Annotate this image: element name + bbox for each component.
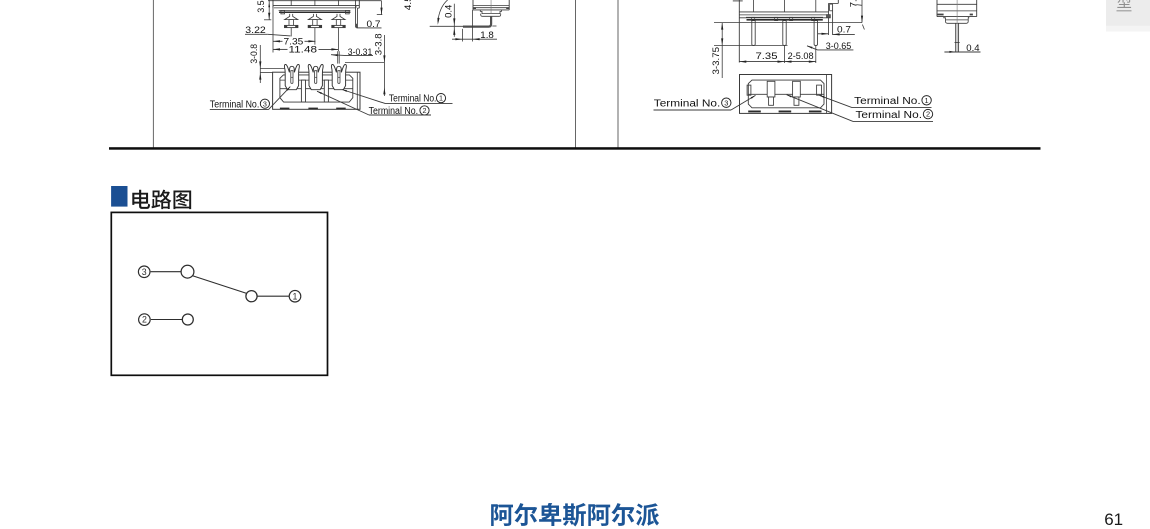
svg-text:3-3.75: 3-3.75: [711, 47, 721, 75]
svg-text:0.7: 0.7: [837, 24, 851, 34]
svg-text:3: 3: [263, 99, 267, 108]
svg-text:1: 1: [439, 94, 443, 103]
svg-text:3.22: 3.22: [245, 25, 265, 35]
svg-text:11.48: 11.48: [289, 45, 318, 55]
svg-text:3-3.8: 3-3.8: [374, 33, 384, 55]
svg-text:Terminal No.: Terminal No.: [856, 110, 923, 121]
svg-text:3: 3: [724, 98, 728, 107]
svg-text:0.4: 0.4: [966, 43, 979, 53]
svg-text:Terminal No.: Terminal No.: [210, 99, 259, 110]
svg-text:Terminal No.: Terminal No.: [654, 98, 721, 109]
svg-text:7.5: 7.5: [849, 0, 859, 7]
svg-text:7.35: 7.35: [756, 51, 778, 61]
svg-text:1: 1: [925, 96, 929, 105]
svg-text:Terminal No.: Terminal No.: [389, 94, 437, 105]
svg-text:Terminal No.: Terminal No.: [854, 96, 921, 107]
svg-text:2: 2: [142, 315, 147, 325]
svg-text:3.5: 3.5: [256, 0, 266, 13]
svg-text:0.4: 0.4: [443, 5, 453, 18]
svg-text:3-0.8: 3-0.8: [249, 44, 259, 64]
svg-text:2: 2: [423, 106, 427, 115]
svg-text:1.8: 1.8: [480, 30, 494, 40]
svg-text:61: 61: [1104, 510, 1123, 529]
svg-text:2-5.08: 2-5.08: [788, 51, 814, 61]
svg-text:3: 3: [142, 267, 147, 277]
svg-text:1: 1: [293, 291, 298, 301]
svg-text:2: 2: [926, 110, 930, 119]
svg-text:4.5: 4.5: [403, 0, 413, 10]
